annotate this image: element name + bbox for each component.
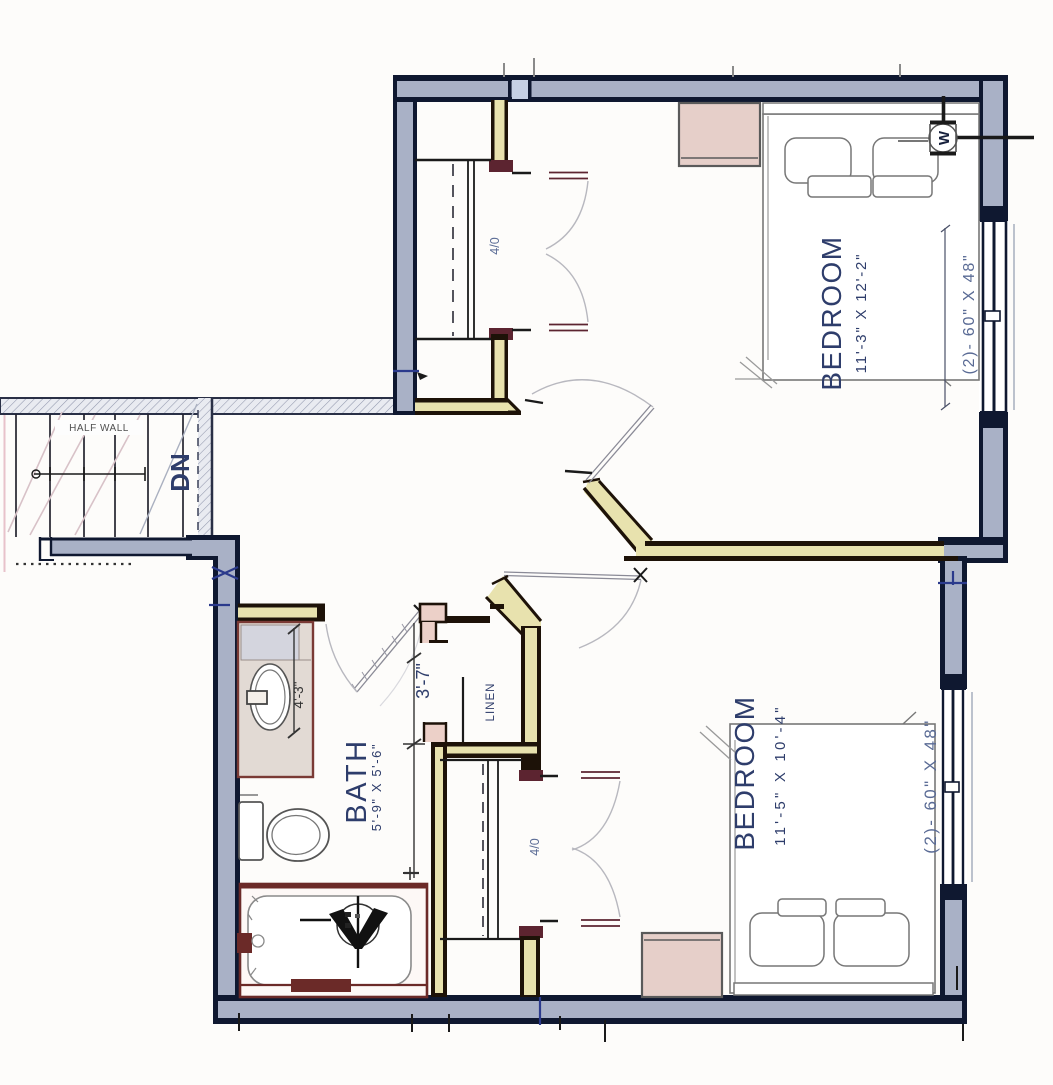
svg-text:HALF WALL: HALF WALL: [69, 423, 129, 434]
svg-text:BEDROOM: BEDROOM: [816, 235, 847, 390]
svg-text:4'-3": 4'-3": [291, 681, 306, 708]
svg-text:BEDROOM: BEDROOM: [729, 695, 760, 850]
svg-text:11'-5" X 10'-4": 11'-5" X 10'-4": [772, 704, 789, 846]
svg-text:(2)- 60" X 48": (2)- 60" X 48": [961, 253, 978, 374]
svg-text:5'-9" X 5'-6": 5'-9" X 5'-6": [369, 743, 384, 831]
svg-text:(2)- 60" X 48": (2)- 60" X 48": [921, 718, 940, 853]
svg-text:DN: DN: [165, 452, 195, 492]
svg-text:4/0: 4/0: [528, 838, 542, 855]
svg-text:4/0: 4/0: [488, 237, 502, 254]
svg-text:W: W: [936, 130, 953, 145]
svg-text:LINEN: LINEN: [485, 683, 497, 722]
svg-text:11'-3" X 12'-2": 11'-3" X 12'-2": [853, 253, 870, 374]
svg-text:3'-7": 3'-7": [413, 663, 433, 699]
